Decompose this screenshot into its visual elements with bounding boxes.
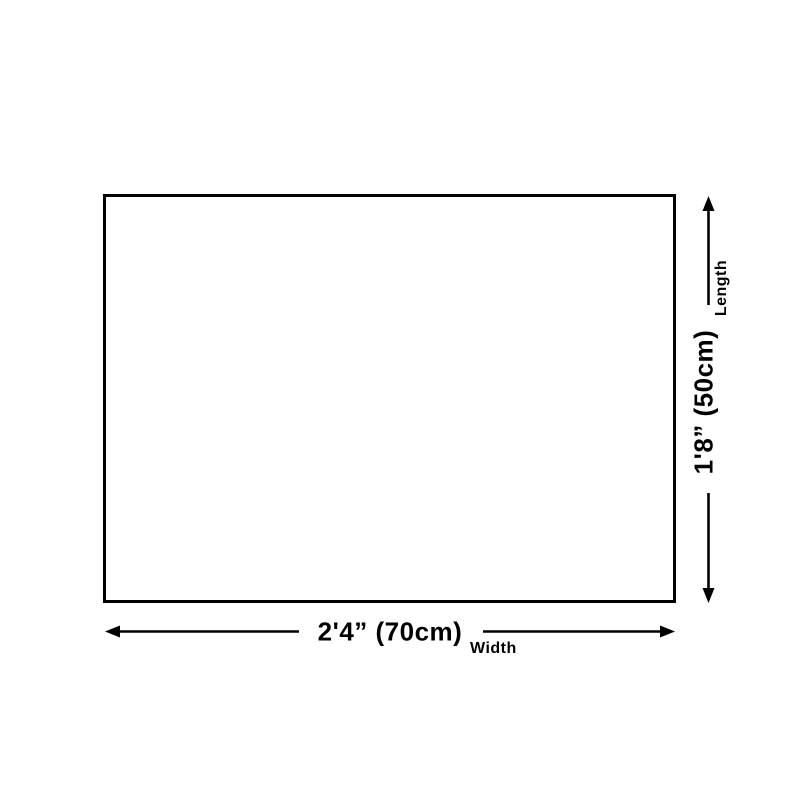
width-arrow-right-icon bbox=[483, 626, 675, 638]
width-arrow-left-icon bbox=[105, 626, 299, 638]
length-dimension-value: 1'8” (50cm) bbox=[689, 330, 720, 475]
dimension-diagram: 2'4” (70cm) Width 1'8” (50cm) Length bbox=[0, 0, 800, 800]
length-arrow-down-icon bbox=[703, 493, 715, 603]
dimension-rectangle bbox=[103, 194, 676, 603]
width-dimension-value: 2'4” (70cm) bbox=[318, 617, 463, 648]
length-dimension-label: Length bbox=[713, 260, 731, 316]
width-dimension-label: Width bbox=[470, 640, 517, 658]
